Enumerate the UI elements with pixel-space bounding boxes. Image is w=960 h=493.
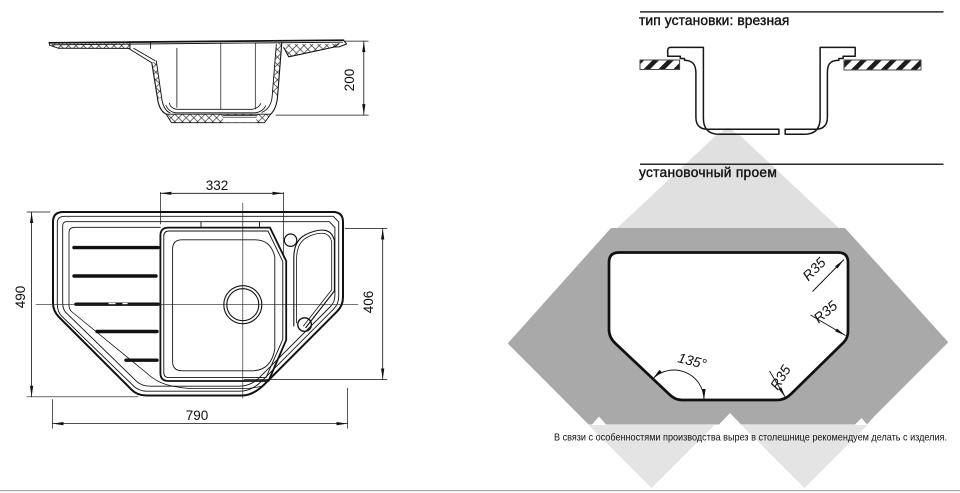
svg-text:490: 490 <box>13 286 28 309</box>
svg-text:тип установки: врезная: тип установки: врезная <box>639 13 790 28</box>
svg-text:406: 406 <box>361 291 376 314</box>
svg-text:332: 332 <box>206 178 229 193</box>
svg-text:200: 200 <box>342 69 357 92</box>
svg-text:установочный проем: установочный проем <box>639 165 777 180</box>
svg-text:В связи с особенностями произв: В связи с особенностями производства выр… <box>554 432 947 444</box>
svg-text:790: 790 <box>186 408 209 423</box>
